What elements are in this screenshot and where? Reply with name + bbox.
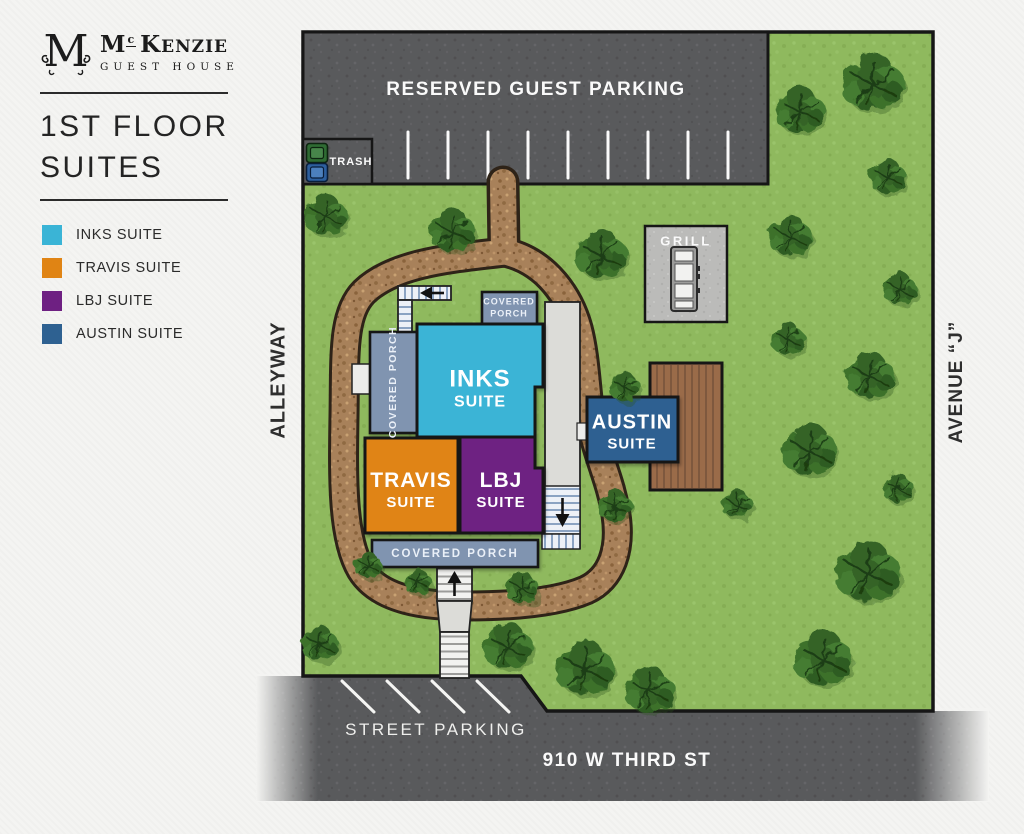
covered-porch-north-label: COVERED PORCH [483, 296, 535, 319]
lbj-suite-label: LBJ SUITE [476, 469, 525, 511]
brand-k: K [140, 31, 161, 58]
street-fade-left [256, 674, 318, 802]
travis-suite-label: TRAVIS SUITE [370, 469, 451, 511]
east-corner-stairs [542, 534, 580, 549]
page-title-line1: 1ST FLOOR [40, 106, 250, 147]
brand-m: M [100, 31, 126, 58]
austin-color-swatch [42, 324, 62, 344]
flyer-page: M McKENZIE GUEST HOUSE 1ST FLOOR SUITES … [0, 0, 1024, 834]
legend-item-austin: AUSTIN SUITE [42, 324, 250, 344]
divider-top [40, 92, 228, 94]
austin-suite-label: AUSTIN SUITE [592, 411, 672, 452]
brand-monogram-icon: M [40, 26, 92, 80]
front-stairs-lower [440, 632, 469, 678]
inks-suite-label: INKS SUITE [449, 365, 510, 412]
page-title-line2: SUITES [40, 147, 250, 188]
avenue-j-label: AVENUE “J” [946, 321, 968, 444]
trash-label: TRASH [330, 156, 373, 168]
brand-name: McKENZIE [100, 33, 239, 56]
brand-logo: M McKENZIE GUEST HOUSE [40, 26, 250, 80]
brand-text: McKENZIE GUEST HOUSE [100, 33, 239, 73]
legend-item-lbj: LBJ SUITE [42, 291, 250, 311]
travis-color-swatch [42, 258, 62, 278]
suite-legend: INKS SUITE TRAVIS SUITE LBJ SUITE AUSTIN… [42, 225, 250, 344]
covered-porch-south-label: COVERED PORCH [391, 548, 519, 560]
alleyway-label: ALLEYWAY [268, 321, 291, 438]
brand-c: c [126, 33, 136, 47]
inks-color-swatch [42, 225, 62, 245]
northwest-stairs-vertical [398, 300, 412, 332]
west-landing [352, 364, 370, 394]
legend-label: AUSTIN SUITE [76, 326, 183, 342]
grill-icon [671, 247, 700, 311]
legend-label: LBJ SUITE [76, 293, 153, 309]
brand-subtitle: GUEST HOUSE [100, 61, 239, 73]
legend-item-travis: TRAVIS SUITE [42, 258, 250, 278]
divider-bottom [40, 199, 228, 201]
street-fade-right [915, 708, 989, 802]
page-title: 1ST FLOOR SUITES [40, 106, 250, 189]
svg-text:M: M [43, 26, 88, 77]
legend-label: INKS SUITE [76, 227, 163, 243]
lbj-color-swatch [42, 291, 62, 311]
covered-porch-west-label: COVERED PORCH [387, 326, 399, 438]
sidebar: M McKENZIE GUEST HOUSE 1ST FLOOR SUITES … [40, 26, 250, 357]
front-walkway-landing [437, 601, 472, 632]
grill-label: GRILL [660, 234, 712, 249]
brand-rest: ENZIE [161, 37, 228, 57]
legend-label: TRAVIS SUITE [76, 260, 181, 276]
blue-trash-bin-icon [307, 164, 328, 182]
third-street-label: 910 W THIRD ST [543, 750, 712, 772]
reserved-parking-label: RESERVED GUEST PARKING [386, 79, 685, 101]
legend-item-inks: INKS SUITE [42, 225, 250, 245]
street-parking-label: STREET PARKING [345, 720, 527, 740]
green-trash-bin-icon [307, 144, 328, 163]
